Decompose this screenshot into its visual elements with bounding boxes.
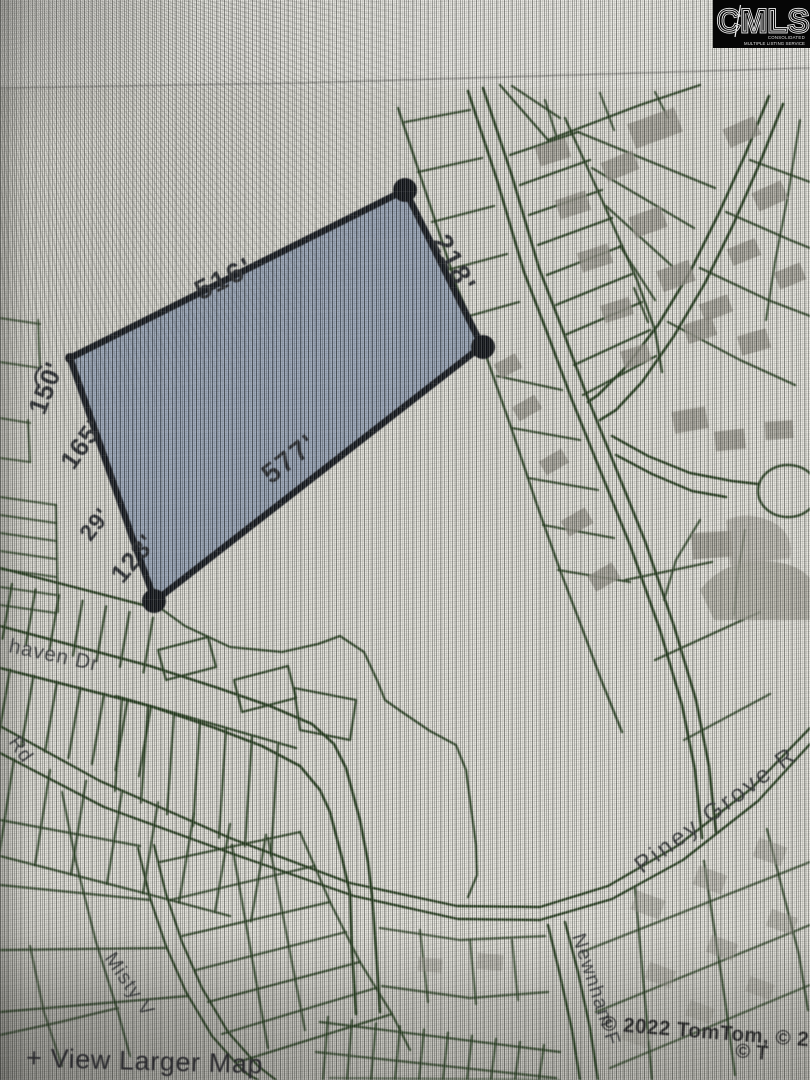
svg-text:CMLS: CMLS: [717, 3, 810, 39]
svg-text:MULTIPLE LISTING SERVICE: MULTIPLE LISTING SERVICE: [744, 41, 805, 46]
svg-text:© T: © T: [735, 1040, 769, 1065]
svg-text:29': 29': [74, 503, 115, 546]
svg-text:CONSOLIDATED: CONSOLIDATED: [768, 35, 805, 40]
svg-text:Rd: Rd: [4, 732, 37, 766]
